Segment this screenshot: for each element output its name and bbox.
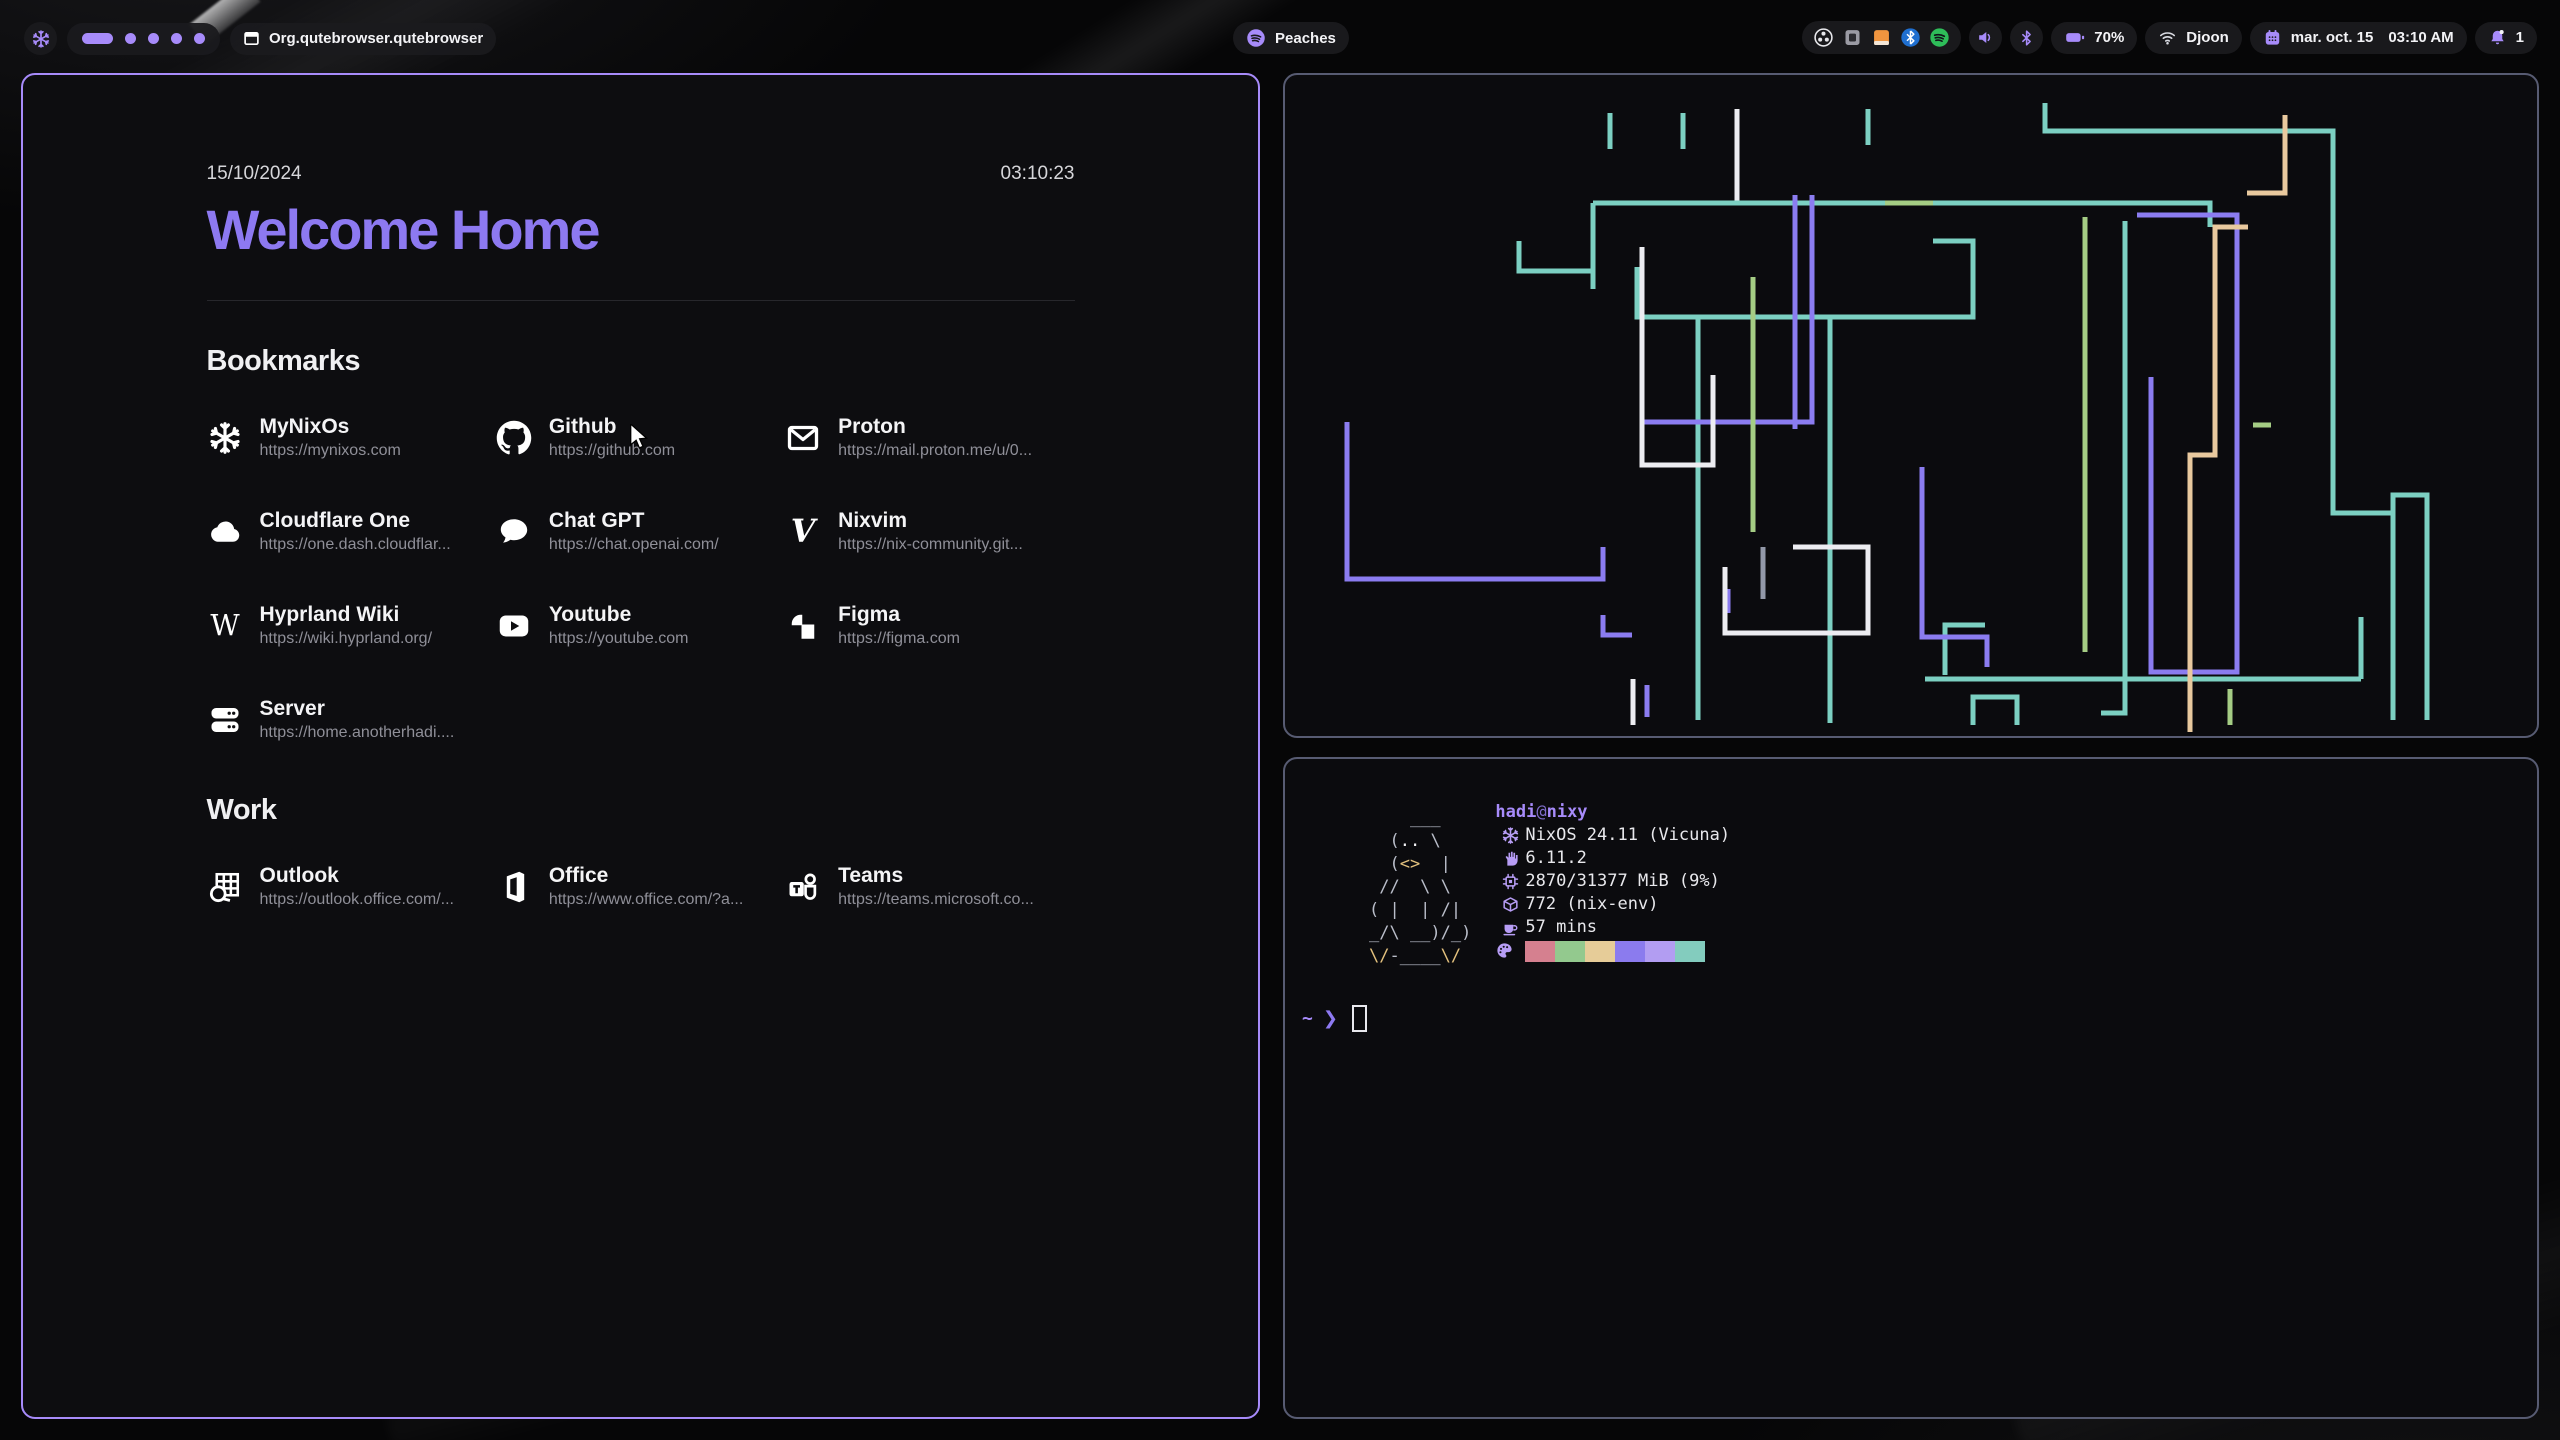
bluetooth-button[interactable] [2010,21,2043,54]
bookmark-github[interactable]: Githubhttps://github.com [496,408,785,468]
palette-swatch [1525,941,1555,962]
fastfetch-user-host: hadi@nixy [1495,801,1730,824]
obs-tray-icon[interactable] [1813,27,1834,48]
bookmark-name: Outlook [260,863,454,889]
battery-percent: 70% [2094,29,2124,46]
spotify-icon [1246,28,1266,48]
fetch-row-nix: NixOS 24.11 (Vicuna) [1495,824,1730,847]
bookmark-mynixos[interactable]: MyNixOshttps://mynixos.com [207,408,496,468]
nixos-logo-icon [31,29,51,49]
bookmark-teams[interactable]: Teamshttps://teams.microsoft.co... [785,857,1074,917]
wifi-icon [2158,28,2177,47]
fetch-value: 2870/31377 MiB (9%) [1525,870,1719,893]
clock-date: mar. oct. 15 [2291,29,2374,46]
bookmark-nixvim[interactable]: VNixvimhttps://nix-community.git... [785,502,1074,562]
startpage-time: 03:10:23 [1001,163,1075,185]
shell-prompt[interactable]: ~ ❯ [1302,1005,1367,1032]
fastfetch-output: ___ (.. \ (<> | // \ \ ( | | /| _/\ __)/… [1369,801,1730,968]
tux-ascii-art: ___ (.. \ (<> | // \ \ ( | | /| _/\ __)/… [1369,807,1471,968]
github-icon [496,420,532,456]
section-heading-bookmarks: Bookmarks [207,345,1075,378]
nix-icon [1495,826,1525,845]
fetch-value: 6.11.2 [1525,847,1586,870]
bookmark-url: https://github.com [549,440,675,462]
bookmark-url: https://nix-community.git... [838,534,1023,556]
topbar-right: 70% Djoon mar. oct. 15 03:10 AM 1 [1802,21,2537,54]
kernel-icon [1495,849,1525,868]
startpage-date: 15/10/2024 [207,163,302,185]
pipes-screensaver-art [1285,75,2537,736]
bookmark-chat-gpt[interactable]: Chat GPThttps://chat.openai.com/ [496,502,785,562]
bell-icon [2488,28,2507,47]
bookmark-url: https://wiki.hyprland.org/ [260,628,433,650]
fetch-row-memory: 2870/31377 MiB (9%) [1495,870,1730,893]
bookmark-url: https://www.office.com/?a... [549,889,743,911]
bookmark-cloudflare-one[interactable]: Cloudflare Onehttps://one.dash.cloudflar… [207,502,496,562]
terminal-cursor [1352,1005,1367,1032]
mail-icon [785,420,821,456]
network-name: Djoon [2186,29,2229,46]
svg-text:V: V [791,514,819,550]
fetch-value: NixOS 24.11 (Vicuna) [1525,824,1730,847]
bookmark-name: Figma [838,602,960,628]
clock-time: 03:10 AM [2388,29,2453,46]
notifications-count: 1 [2516,29,2524,46]
palette-swatch [1555,941,1585,962]
pipes-terminal-window [1283,73,2539,738]
fetch-value: 57 mins [1525,916,1597,939]
system-tray[interactable] [1802,21,1961,54]
workspace-dot[interactable] [194,33,205,44]
bluetooth-icon [2018,29,2036,47]
bookmark-url: https://mynixos.com [260,440,401,462]
network-chip[interactable]: Djoon [2145,22,2242,54]
fetch-value: 772 (nix-env) [1525,893,1658,916]
palette-swatch [1645,941,1675,962]
speaker-icon [1976,28,1995,47]
startpage-header: 15/10/2024 03:10:23 [207,163,1075,185]
bookmark-name: Server [260,696,455,722]
palette-swatch [1675,941,1705,962]
bookmark-url: https://youtube.com [549,628,689,650]
nixos-icon [207,420,243,456]
startpage-title: Welcome Home [207,197,1075,262]
files-tray-icon[interactable] [1871,27,1892,48]
bluetooth-blue-tray-icon[interactable] [1900,27,1921,48]
bookmark-grid: MyNixOshttps://mynixos.comGithubhttps://… [207,408,1075,750]
fastfetch-info: hadi@nixy NixOS 24.11 (Vicuna)6.11.22870… [1495,801,1730,968]
svg-text:W: W [210,609,240,642]
palette-swatch [1615,941,1645,962]
bookmark-server[interactable]: Serverhttps://home.anotherhadi.... [207,690,496,750]
workspace-dot[interactable] [148,33,159,44]
bookmark-sections: BookmarksMyNixOshttps://mynixos.comGithu… [207,345,1075,917]
bookmark-name: Github [549,414,675,440]
workspaces-indicator[interactable] [67,23,220,55]
bookmark-name: Chat GPT [549,508,719,534]
keepassxc-tray-icon[interactable] [1842,27,1863,48]
bookmark-url: https://outlook.office.com/... [260,889,454,911]
bookmark-outlook[interactable]: Outlookhttps://outlook.office.com/... [207,857,496,917]
bookmark-name: Teams [838,863,1033,889]
bookmark-url: https://chat.openai.com/ [549,534,719,556]
packages-icon [1495,895,1525,914]
spotify-green-tray-icon[interactable] [1929,27,1950,48]
prompt-arrow: ❯ [1323,1008,1338,1029]
fetch-row-packages: 772 (nix-env) [1495,893,1730,916]
workspace-dot[interactable] [171,33,182,44]
battery-chip[interactable]: 70% [2051,22,2137,54]
wikipedia-icon: W [207,608,243,644]
divider [207,300,1075,301]
bookmark-name: Hyprland Wiki [260,602,433,628]
palette-row [1495,939,1730,962]
prompt-path: ~ [1302,1008,1313,1029]
media-player-chip[interactable]: Peaches [1233,22,1349,54]
office-icon [496,869,532,905]
notifications-chip[interactable]: 1 [2475,22,2537,54]
bookmark-name: Nixvim [838,508,1023,534]
section-heading-work: Work [207,794,1075,827]
workspace-active[interactable] [82,33,113,44]
figma-icon [785,608,821,644]
startpage: 15/10/2024 03:10:23 Welcome Home Bookmar… [207,75,1075,917]
fetch-row-kernel: 6.11.2 [1495,847,1730,870]
cloud-icon [207,514,243,550]
bookmark-url: https://home.anotherhadi.... [260,722,455,744]
bookmark-hyprland-wiki[interactable]: WHyprland Wikihttps://wiki.hyprland.org/ [207,596,496,656]
nixos-launcher-button[interactable] [24,22,57,55]
window-icon [243,30,260,47]
teams-icon [785,869,821,905]
bookmark-url: https://one.dash.cloudflar... [260,534,451,556]
battery-icon [2064,27,2085,48]
fetch-row-uptime: 57 mins [1495,916,1730,939]
qutebrowser-window: 15/10/2024 03:10:23 Welcome Home Bookmar… [21,73,1260,1419]
media-track-label: Peaches [1275,30,1336,47]
palette-icon [1495,941,1525,960]
bookmark-figma[interactable]: Figmahttps://figma.com [785,596,1074,656]
bookmark-name: Proton [838,414,1032,440]
bookmark-name: Cloudflare One [260,508,451,534]
bookmark-url: https://teams.microsoft.co... [838,889,1033,911]
uptime-icon [1495,918,1525,937]
desktop: Org.qutebrowser.qutebrowser Peaches 70% … [0,0,2560,1440]
bookmark-name: Youtube [549,602,689,628]
youtube-icon [496,608,532,644]
chat-icon [496,514,532,550]
bookmark-youtube[interactable]: Youtubehttps://youtube.com [496,596,785,656]
topbar-center: Peaches [1233,22,1349,54]
bookmark-proton[interactable]: Protonhttps://mail.proton.me/u/0... [785,408,1074,468]
server-icon [207,702,243,738]
topbar-left: Org.qutebrowser.qutebrowser [24,22,496,55]
bookmark-office[interactable]: Officehttps://www.office.com/?a... [496,857,785,917]
vim-icon: V [785,514,821,550]
bookmark-grid: Outlookhttps://outlook.office.com/...Off… [207,857,1075,917]
calendar-icon [2263,28,2282,47]
bookmark-url: https://figma.com [838,628,960,650]
volume-button[interactable] [1969,21,2002,54]
active-window-chip[interactable]: Org.qutebrowser.qutebrowser [230,23,496,55]
fetch-terminal-window: ___ (.. \ (<> | // \ \ ( | | /| _/\ __)/… [1283,757,2539,1419]
bookmark-name: MyNixOs [260,414,401,440]
palette-swatch [1585,941,1615,962]
workspace-dot[interactable] [125,33,136,44]
active-window-title: Org.qutebrowser.qutebrowser [269,30,483,47]
bookmark-name: Office [549,863,743,889]
memory-icon [1495,872,1525,891]
bookmark-url: https://mail.proton.me/u/0... [838,440,1032,462]
outlook-icon [207,869,243,905]
clock-chip[interactable]: mar. oct. 15 03:10 AM [2250,22,2467,54]
